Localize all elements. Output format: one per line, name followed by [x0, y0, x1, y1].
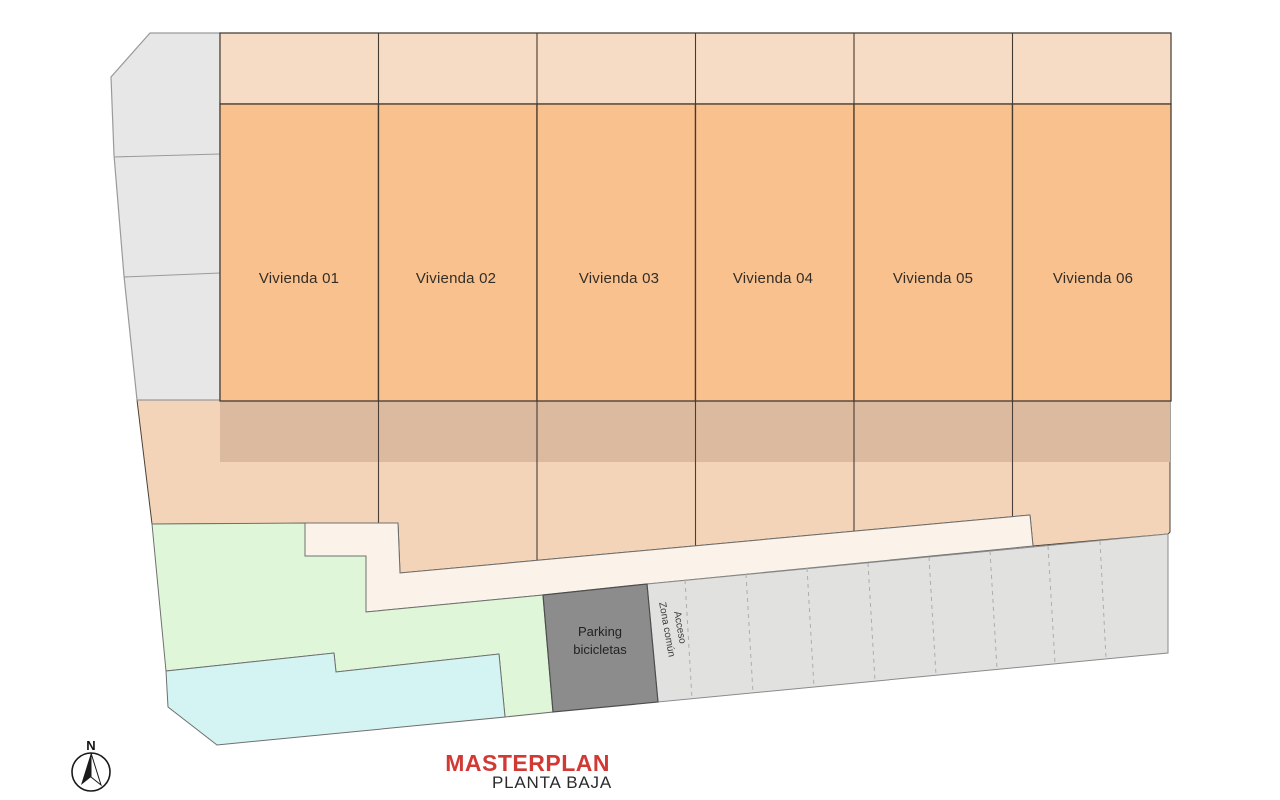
vivienda-01-label: Vivienda 01 [259, 270, 339, 287]
masterplan-drawing: Parking bicicletas Acceso Zona común Viv… [0, 0, 1280, 800]
vivienda-02-label: Vivienda 02 [416, 270, 496, 287]
vivienda-05-label: Vivienda 05 [893, 270, 973, 287]
vivienda-plots [220, 104, 1171, 401]
north-arrow: N [72, 738, 110, 791]
vivienda-04-label: Vivienda 04 [733, 270, 813, 287]
vivienda-04-plot [696, 104, 855, 401]
pool-zone [166, 653, 505, 745]
vivienda-06-plot [1013, 104, 1172, 401]
vivienda-06-label: Vivienda 06 [1053, 270, 1133, 287]
vivienda-03-plot [537, 104, 696, 401]
vivienda-02-plot [379, 104, 538, 401]
bike-parking-label-line2: bicicletas [573, 642, 627, 657]
north-label: N [86, 738, 95, 753]
vivienda-05-plot [854, 104, 1013, 401]
masterplan-page: Parking bicicletas Acceso Zona común Viv… [0, 0, 1280, 800]
bike-parking-label-line1: Parking [578, 624, 622, 639]
vivienda-03-label: Vivienda 03 [579, 270, 659, 287]
plan-subtitle: PLANTA BAJA [492, 773, 612, 792]
vivienda-01-plot [220, 104, 379, 401]
side-plots-strip [111, 33, 220, 400]
